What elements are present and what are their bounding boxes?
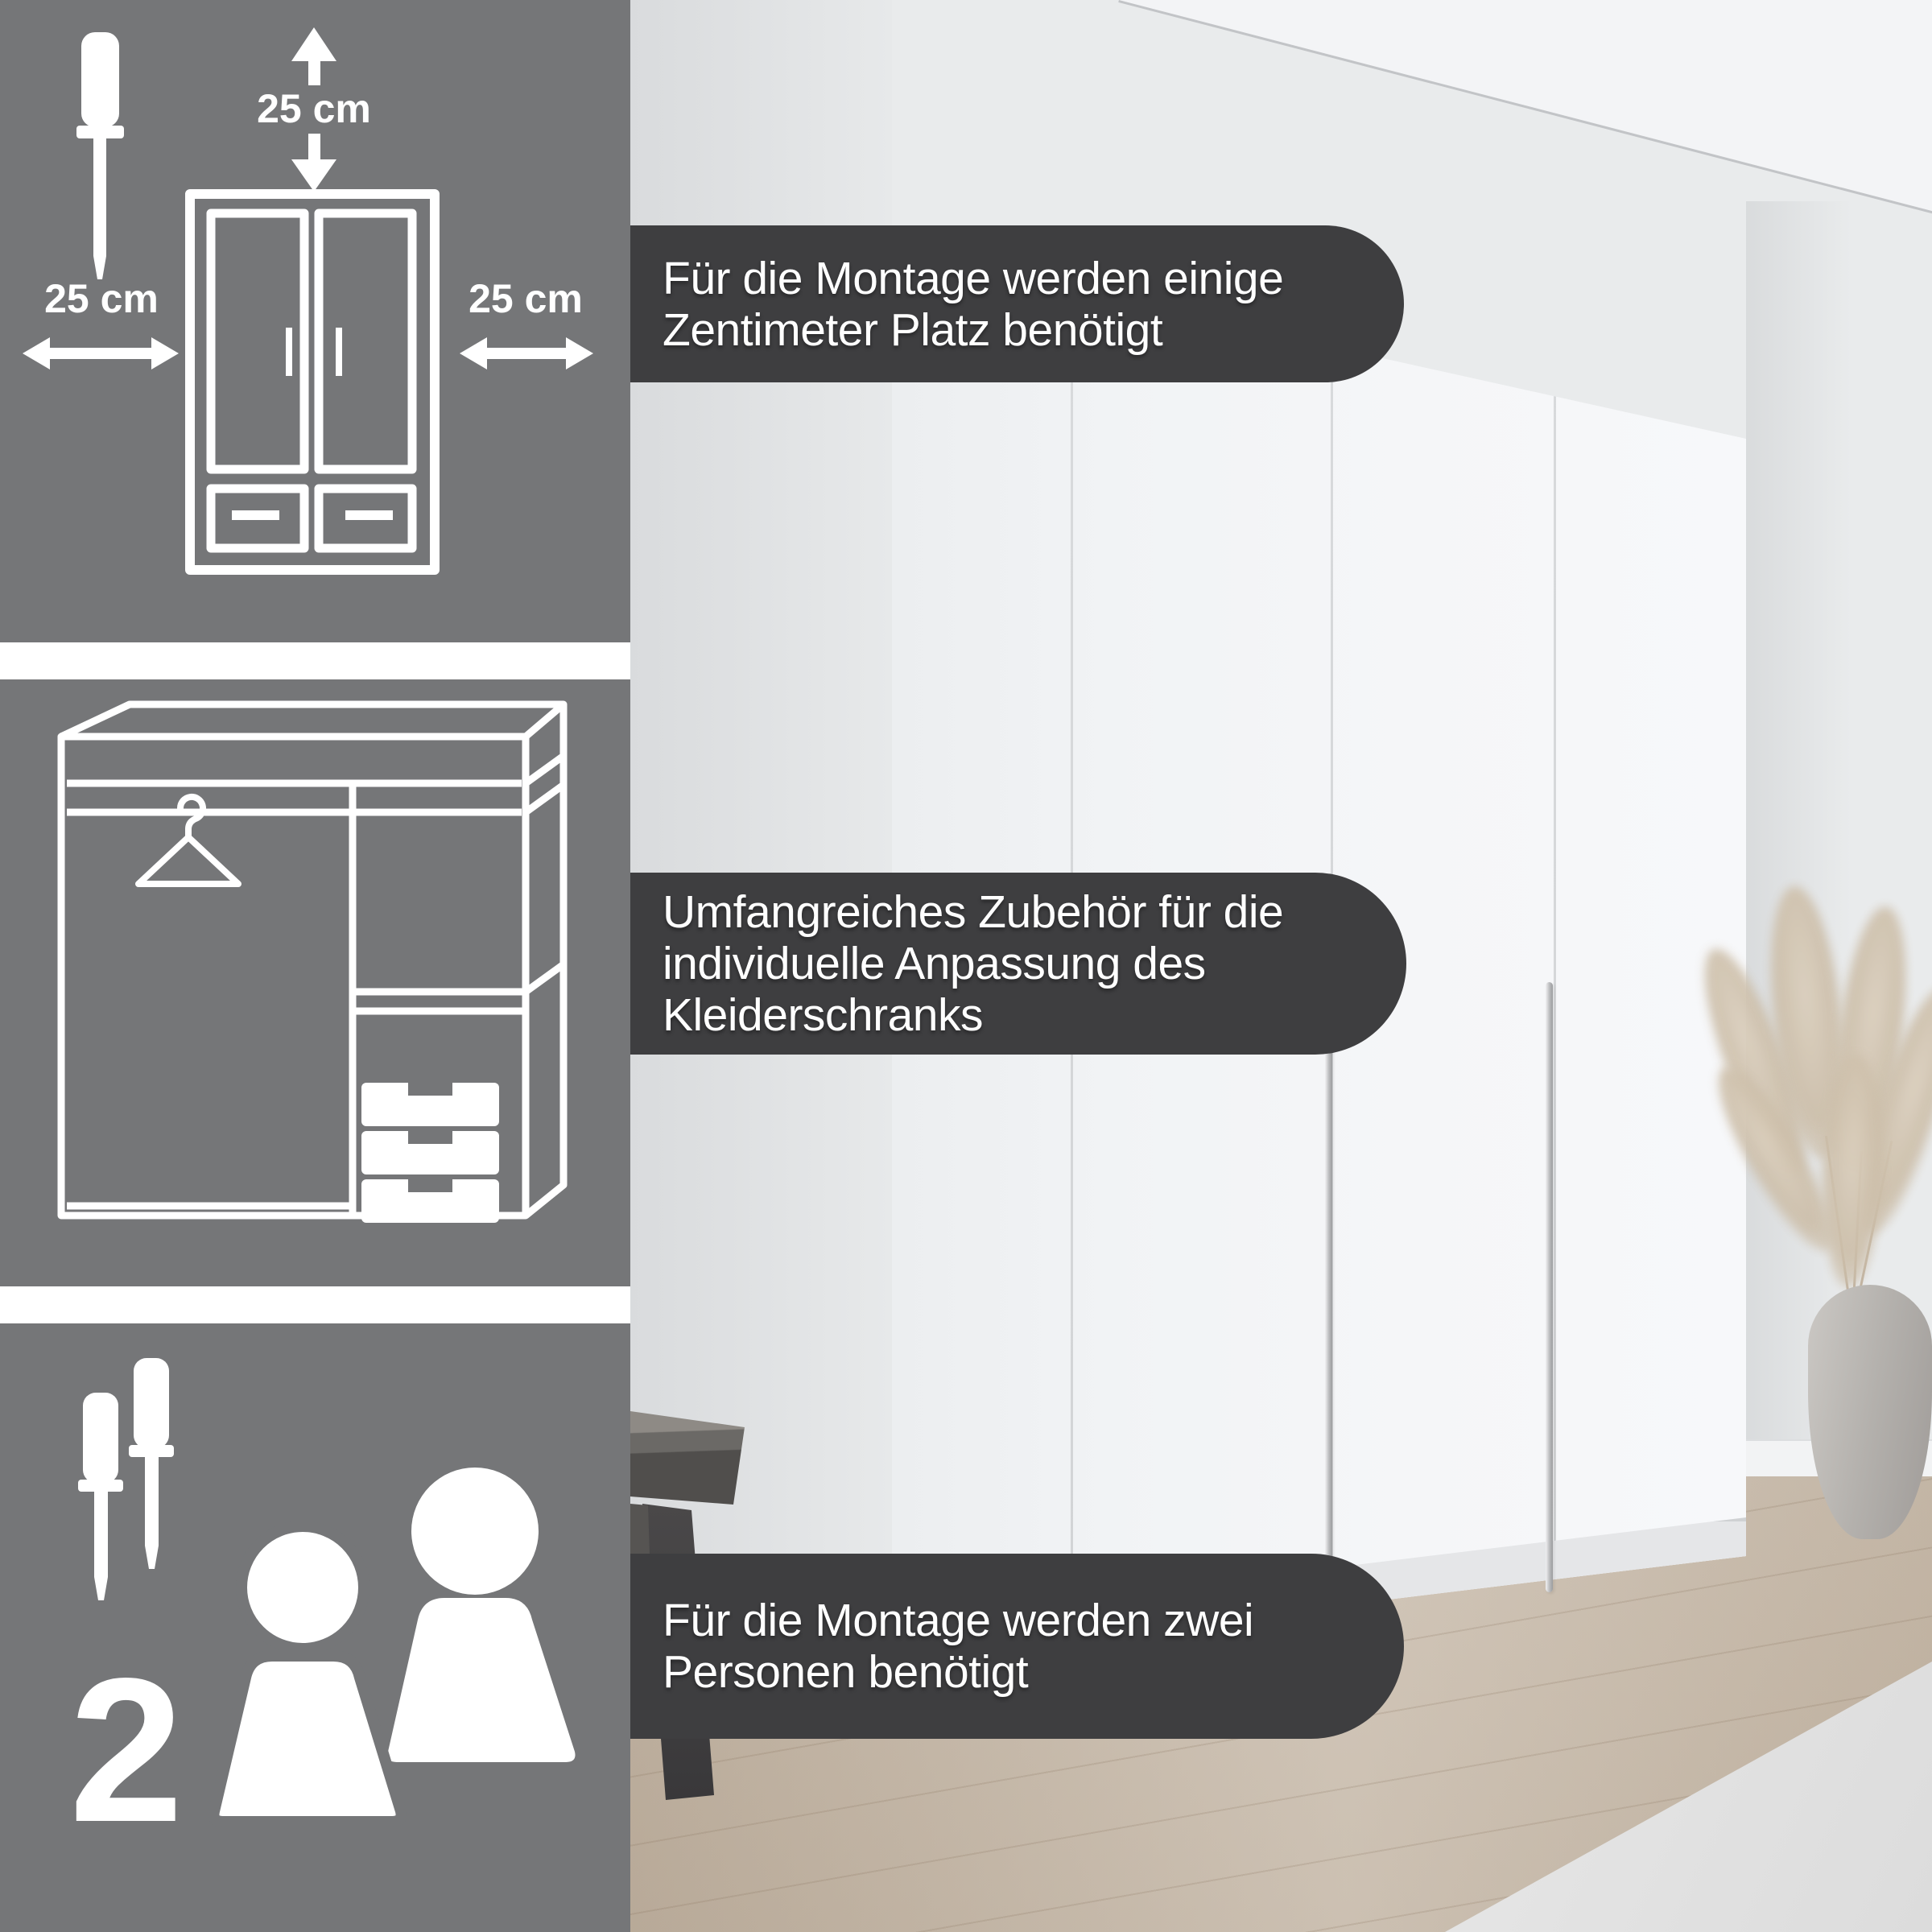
arrow-left-right-icon (484, 348, 569, 359)
two-persons-icon (213, 1468, 575, 1822)
top-clearance-label: 25 cm (257, 86, 371, 131)
left-clearance-label: 25 cm (44, 276, 159, 321)
screwdriver-icon (78, 1393, 123, 1600)
door-handle (1325, 979, 1332, 1587)
callout-accessories: Umfangreiches Zubehör für die individuel… (630, 873, 1406, 1055)
callout-text: Kleiderschranks (663, 989, 1406, 1041)
drawers-icon (361, 1083, 499, 1223)
top-clearance-dimension: 25 cm (257, 27, 371, 192)
callout-text: Für die Montage werden zwei (663, 1595, 1404, 1646)
callout-clearance: Für die Montage werden einige Zentimeter… (630, 225, 1404, 382)
callout-text: Zentimeter Platz benötigt (663, 304, 1404, 356)
callout-text: Personen benötigt (663, 1646, 1404, 1698)
vase (1808, 1285, 1932, 1539)
right-clearance-dimension: 25 cm (460, 276, 593, 369)
door-handle (1546, 982, 1553, 1592)
screwdriver-icon (129, 1358, 174, 1569)
screwdriver-icon (76, 32, 124, 279)
clearance-diagram: 25 cm 25 cm 25 c (0, 0, 630, 642)
callout-text: Für die Montage werden einige (663, 253, 1404, 304)
arrow-up-icon (291, 27, 336, 61)
panel-interior (0, 679, 630, 1286)
door-seam (1554, 250, 1556, 1660)
pampas-grass (1717, 869, 1932, 1320)
infographic-page: 25 cm 25 cm 25 c (0, 0, 1932, 1932)
callout-text: individuelle Anpassung des (663, 938, 1406, 989)
callout-text: Umfangreiches Zubehör für die (663, 886, 1406, 938)
arrow-down-icon (291, 159, 336, 192)
panel-assembly: 2 (0, 1323, 630, 1932)
person-count: 2 (69, 1636, 184, 1865)
wardrobe-front-icon (190, 194, 435, 570)
panel-clearance: 25 cm 25 cm 25 c (0, 0, 630, 642)
callout-two-persons: Für die Montage werden zwei Personen ben… (630, 1554, 1404, 1739)
assembly-diagram: 2 (0, 1323, 630, 1932)
left-clearance-dimension: 25 cm (23, 276, 179, 369)
arrow-left-right-icon (47, 348, 155, 359)
right-clearance-label: 25 cm (469, 276, 583, 321)
wardrobe-interior-icon (0, 679, 630, 1286)
